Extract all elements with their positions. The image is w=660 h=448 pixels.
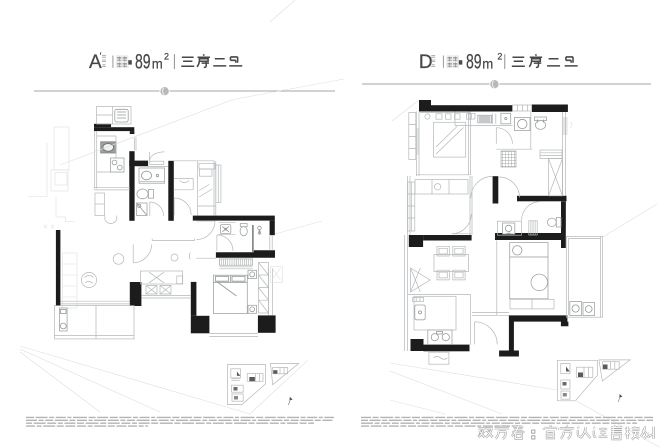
svg-text:m: m [482,57,493,72]
svg-text:m: m [152,57,163,72]
svg-text:2: 2 [164,51,169,61]
svg-text:89: 89 [466,51,482,74]
svg-text:2: 2 [497,51,502,61]
svg-text:89: 89 [135,51,151,74]
svg-text:D: D [419,52,433,73]
